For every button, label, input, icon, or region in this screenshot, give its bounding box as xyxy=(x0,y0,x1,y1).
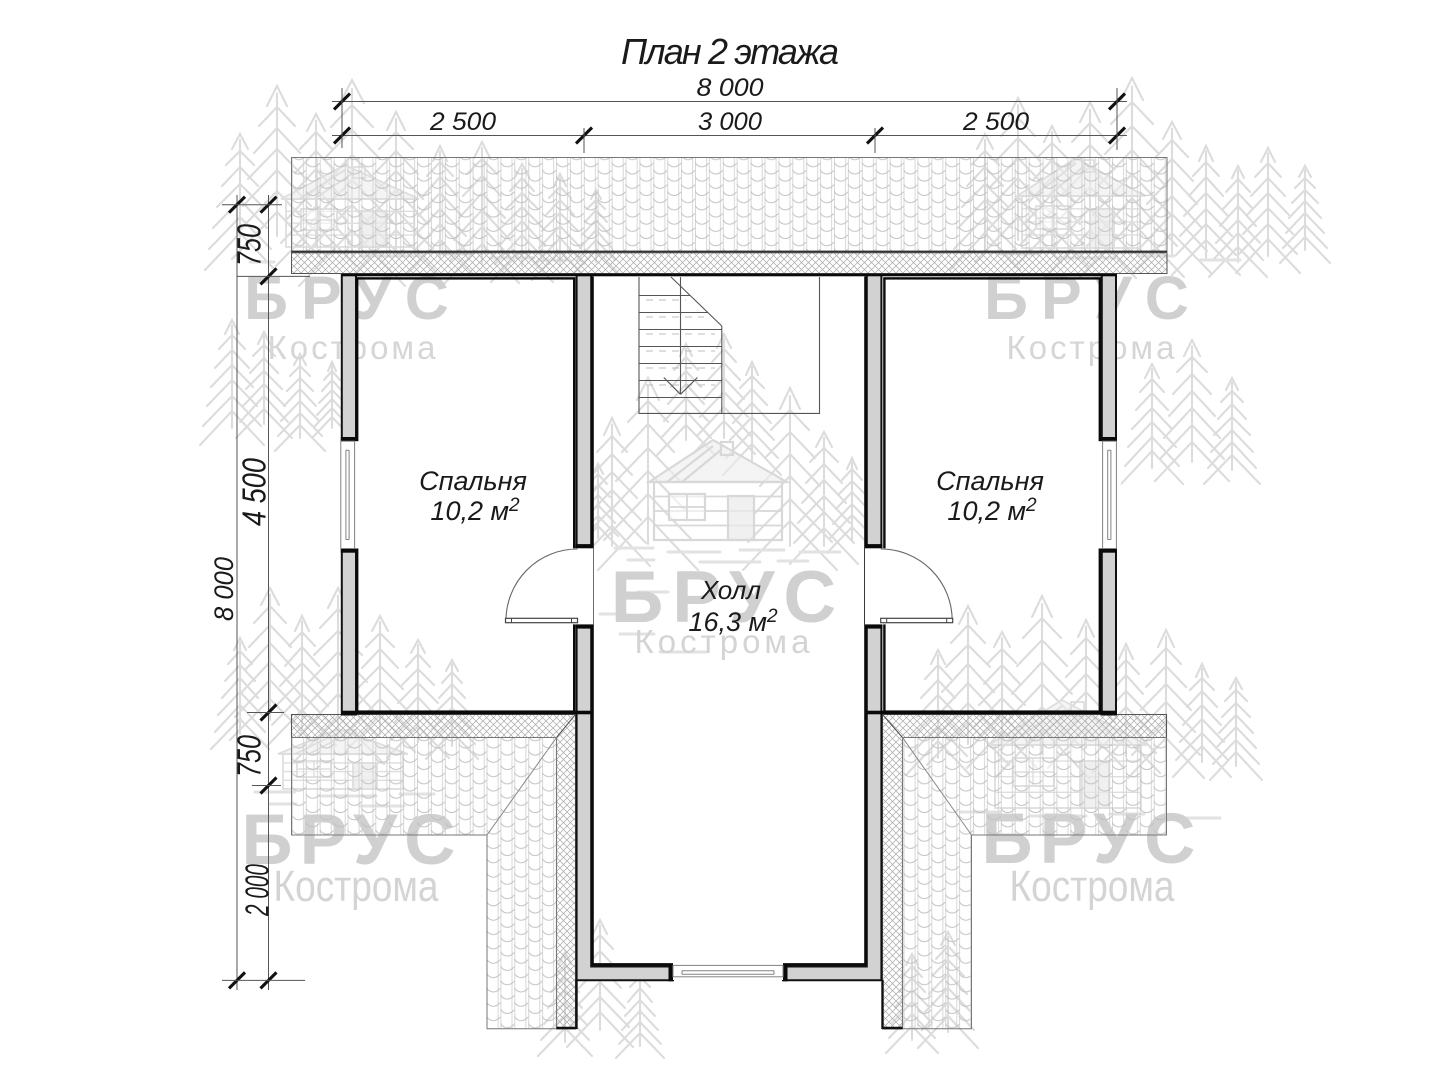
svg-text:Кострома: Кострома xyxy=(1010,862,1175,911)
svg-text:8 000: 8 000 xyxy=(209,557,239,621)
svg-text:10,2 м2: 10,2 м2 xyxy=(947,495,1037,526)
svg-text:10,2 м2: 10,2 м2 xyxy=(430,495,520,526)
svg-text:Спальня: Спальня xyxy=(936,466,1044,496)
svg-text:Кострома: Кострома xyxy=(1007,329,1178,366)
svg-text:4 500: 4 500 xyxy=(236,457,273,526)
svg-text:8 000: 8 000 xyxy=(697,74,764,102)
svg-text:750: 750 xyxy=(231,735,268,777)
svg-text:Спальня: Спальня xyxy=(419,466,527,496)
svg-text:Кострома: Кострома xyxy=(274,862,439,911)
svg-text:Холл: Холл xyxy=(700,575,761,605)
svg-text:2 500: 2 500 xyxy=(429,108,496,136)
svg-text:16,3 м2: 16,3 м2 xyxy=(688,606,778,637)
svg-text:3 000: 3 000 xyxy=(698,108,762,136)
svg-text:2 500: 2 500 xyxy=(962,108,1029,136)
svg-text:750: 750 xyxy=(231,224,268,266)
svg-text:План 2 этажа: План 2 этажа xyxy=(621,31,839,72)
svg-text:2 000: 2 000 xyxy=(239,864,276,917)
